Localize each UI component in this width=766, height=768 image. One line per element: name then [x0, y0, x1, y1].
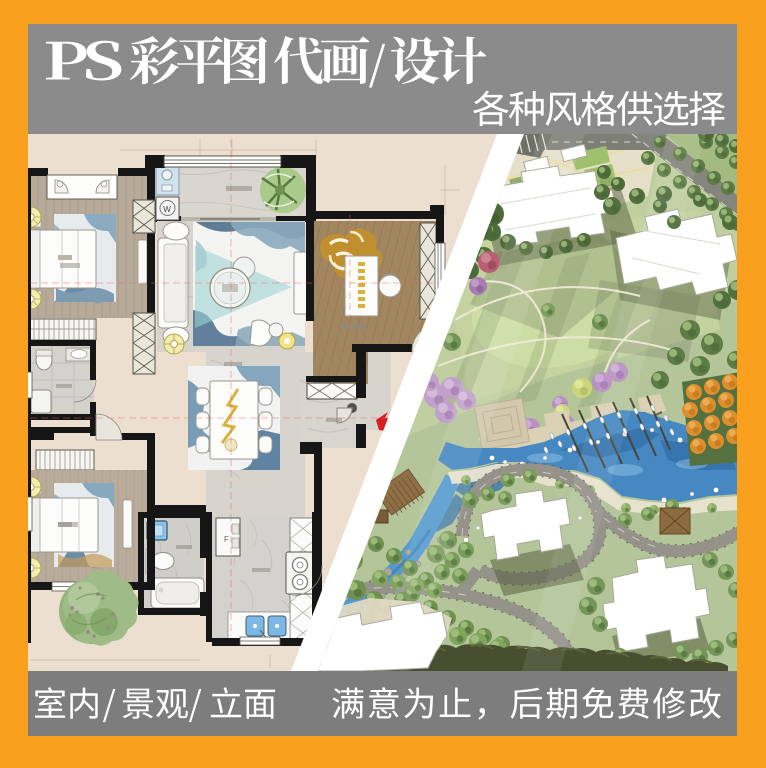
svg-text:W: W [163, 205, 171, 214]
svg-text:F: F [224, 535, 229, 544]
